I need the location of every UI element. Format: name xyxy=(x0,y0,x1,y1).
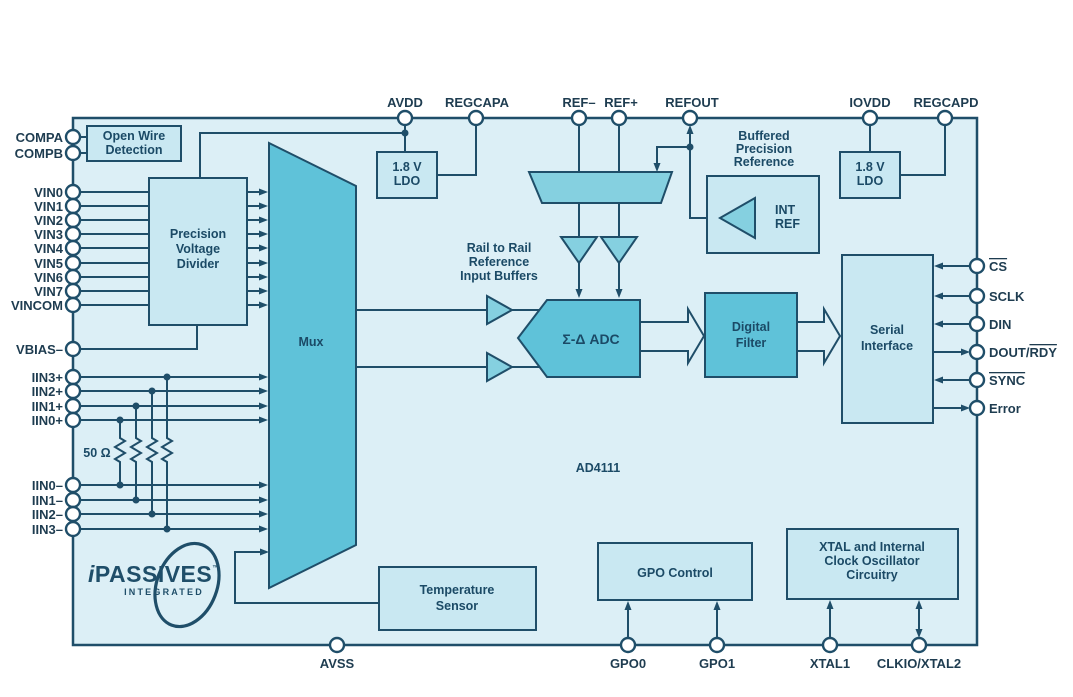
svg-text:Interface: Interface xyxy=(861,339,913,353)
left-pins: COMPA COMPB VIN0 VIN1 VIN2 VIN3 VIN4 VIN… xyxy=(11,130,80,537)
pin-clkio-xtal2 xyxy=(912,638,926,652)
svg-text:Error: Error xyxy=(989,401,1021,416)
svg-text:Detection: Detection xyxy=(106,143,163,157)
pin-vbias-minus xyxy=(66,342,80,356)
pin-vin7 xyxy=(66,284,80,298)
pin-gpo1 xyxy=(710,638,724,652)
mux-block: Mux xyxy=(269,143,356,588)
svg-text:XTAL and Internal: XTAL and Internal xyxy=(819,540,925,554)
buffered-reference-caption: Buffered xyxy=(738,129,789,143)
svg-text:IIN3+: IIN3+ xyxy=(32,370,64,385)
part-number-label: AD4111 xyxy=(576,461,621,475)
pin-cs xyxy=(970,259,984,273)
pin-iovdd xyxy=(863,111,877,125)
svg-text:COMPB: COMPB xyxy=(15,146,63,161)
svg-text:VIN1: VIN1 xyxy=(34,199,63,214)
svg-text:1.8 V: 1.8 V xyxy=(392,160,422,174)
pin-avss xyxy=(330,638,344,652)
svg-text:VBIAS–: VBIAS– xyxy=(16,342,63,357)
svg-text:VINCOM: VINCOM xyxy=(11,298,63,313)
svg-text:Precision: Precision xyxy=(736,142,792,156)
svg-text:SCLK: SCLK xyxy=(989,289,1025,304)
svg-text:IIN1+: IIN1+ xyxy=(32,399,64,414)
svg-text:IIN2–: IIN2– xyxy=(32,507,63,522)
svg-text:LDO: LDO xyxy=(394,174,421,188)
svg-text:IIN0+: IIN0+ xyxy=(32,413,64,428)
xtal-oscillator-block: XTAL and Internal Clock Oscillator Circu… xyxy=(787,529,958,599)
pin-ref-plus xyxy=(612,111,626,125)
pin-iin3-minus xyxy=(66,522,80,536)
gpo-control-block: GPO Control xyxy=(598,543,752,600)
precision-voltage-divider-block: Precision Voltage Divider xyxy=(149,178,247,325)
svg-text:REF: REF xyxy=(775,217,800,231)
svg-text:1.8 V: 1.8 V xyxy=(855,160,885,174)
rail-to-rail-caption: Rail to Rail xyxy=(467,241,532,255)
svg-text:Digital: Digital xyxy=(732,320,770,334)
svg-text:REGCAPA: REGCAPA xyxy=(445,95,510,110)
mux-label: Mux xyxy=(299,335,324,349)
svg-text:Voltage: Voltage xyxy=(176,242,220,256)
svg-text:VIN3: VIN3 xyxy=(34,227,63,242)
svg-text:Temperature: Temperature xyxy=(420,583,495,597)
svg-text:COMPA: COMPA xyxy=(16,130,64,145)
svg-text:VIN5: VIN5 xyxy=(34,256,63,271)
svg-text:GPO0: GPO0 xyxy=(610,656,646,671)
temperature-sensor-block: Temperature Sensor xyxy=(379,567,536,630)
svg-text:REF–: REF– xyxy=(562,95,595,110)
diagram-canvas: Mux Open Wire Detection Precision Voltag… xyxy=(0,0,1073,697)
svg-text:IIN2+: IIN2+ xyxy=(32,384,64,399)
pin-dout-rdy-label: DOUT/RDY xyxy=(989,345,1057,360)
svg-text:IIN0–: IIN0– xyxy=(32,478,63,493)
svg-text:Reference: Reference xyxy=(734,155,794,169)
pin-avdd xyxy=(398,111,412,125)
pin-iin1-minus xyxy=(66,493,80,507)
pin-cs-label: CS xyxy=(989,259,1007,274)
pin-regcapd xyxy=(938,111,952,125)
pin-refout xyxy=(683,111,697,125)
resistor-value-label: 50 Ω xyxy=(83,446,110,460)
pin-vincom xyxy=(66,298,80,312)
svg-text:Filter: Filter xyxy=(736,336,767,350)
svg-text:Reference: Reference xyxy=(469,255,529,269)
svg-text:CLKIO/XTAL2: CLKIO/XTAL2 xyxy=(877,656,961,671)
svg-text:Clock Oscillator: Clock Oscillator xyxy=(824,554,919,568)
pin-gpo0 xyxy=(621,638,635,652)
pin-iin3-plus xyxy=(66,370,80,384)
pin-vin2 xyxy=(66,213,80,227)
svg-text:Open Wire: Open Wire xyxy=(103,129,165,143)
svg-text:Divider: Divider xyxy=(177,257,220,271)
svg-text:IOVDD: IOVDD xyxy=(849,95,890,110)
svg-text:REGCAPD: REGCAPD xyxy=(913,95,978,110)
svg-text:VIN4: VIN4 xyxy=(34,241,64,256)
svg-text:LDO: LDO xyxy=(857,174,884,188)
pin-xtal1 xyxy=(823,638,837,652)
pin-iin0-plus xyxy=(66,413,80,427)
svg-text:REFOUT: REFOUT xyxy=(665,95,719,110)
svg-text:Precision: Precision xyxy=(170,227,226,241)
pin-dout-rdy xyxy=(970,345,984,359)
serial-interface-block: Serial Interface xyxy=(842,255,933,423)
right-pins: CS SCLK DIN DOUT/RDY SYNC Error xyxy=(970,259,1057,416)
adc-label: Σ-Δ ADC xyxy=(562,331,619,347)
svg-text:VIN0: VIN0 xyxy=(34,185,63,200)
pin-vin3 xyxy=(66,227,80,241)
pin-vin4 xyxy=(66,241,80,255)
digital-filter-block: Digital Filter xyxy=(705,293,797,377)
svg-text:IIN1–: IIN1– xyxy=(32,493,63,508)
ldo-digital-block: 1.8 V LDO xyxy=(840,152,900,198)
logo-subtitle: INTEGRATED xyxy=(124,587,204,597)
pin-error xyxy=(970,401,984,415)
logo-wordmark: iPASSIVES™ xyxy=(88,561,220,587)
svg-text:IIN3–: IIN3– xyxy=(32,522,63,537)
pin-vin6 xyxy=(66,270,80,284)
svg-text:VIN2: VIN2 xyxy=(34,213,63,228)
svg-text:Input Buffers: Input Buffers xyxy=(460,269,538,283)
pin-ref-minus xyxy=(572,111,586,125)
open-wire-detection-block: Open Wire Detection xyxy=(87,126,181,161)
pin-compb xyxy=(66,146,80,160)
pin-sync xyxy=(970,373,984,387)
svg-text:GPO1: GPO1 xyxy=(699,656,735,671)
pin-iin0-minus xyxy=(66,478,80,492)
reference-mux-shape xyxy=(529,172,672,203)
svg-text:AVSS: AVSS xyxy=(320,656,355,671)
pin-iin1-plus xyxy=(66,399,80,413)
block-diagram: Mux Open Wire Detection Precision Voltag… xyxy=(0,0,1073,697)
svg-text:XTAL1: XTAL1 xyxy=(810,656,850,671)
pin-regcapa xyxy=(469,111,483,125)
svg-text:Serial: Serial xyxy=(870,323,904,337)
svg-text:DIN: DIN xyxy=(989,317,1011,332)
svg-text:GPO Control: GPO Control xyxy=(637,566,713,580)
svg-text:VIN6: VIN6 xyxy=(34,270,63,285)
pin-sync-label: SYNC xyxy=(989,373,1026,388)
svg-text:AVDD: AVDD xyxy=(387,95,423,110)
ldo-analog-block: 1.8 V LDO xyxy=(377,152,437,198)
pin-vin0 xyxy=(66,185,80,199)
svg-text:REF+: REF+ xyxy=(604,95,638,110)
pin-iin2-minus xyxy=(66,507,80,521)
pin-vin5 xyxy=(66,256,80,270)
svg-text:INT: INT xyxy=(775,203,796,217)
svg-text:Sensor: Sensor xyxy=(436,599,479,613)
pin-iin2-plus xyxy=(66,384,80,398)
pin-din xyxy=(970,317,984,331)
pin-compa xyxy=(66,130,80,144)
svg-text:VIN7: VIN7 xyxy=(34,284,63,299)
pin-vin1 xyxy=(66,199,80,213)
pin-sclk xyxy=(970,289,984,303)
svg-text:Circuitry: Circuitry xyxy=(846,568,897,582)
